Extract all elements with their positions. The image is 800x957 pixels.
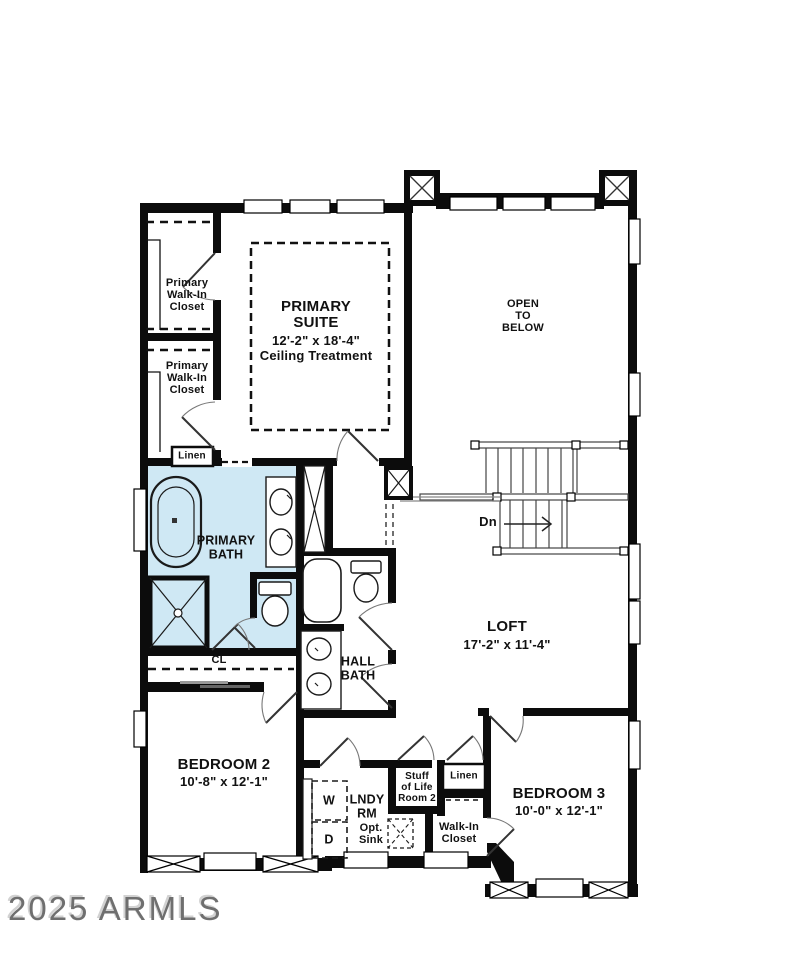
label-stuff-of-life: Stuff of Life Room 2 xyxy=(398,772,436,804)
label-primary-walkin-closet-2: Primary Walk-In Closet xyxy=(166,361,208,397)
stairs xyxy=(400,441,628,555)
label-linen-lower: Linen xyxy=(450,772,478,783)
label-bedroom2-dims: 10'-8" x 12'-1" xyxy=(180,775,268,789)
label-primary-suite-note: Ceiling Treatment xyxy=(260,349,372,363)
label-primary-walkin-closet-1: Primary Walk-In Closet xyxy=(166,278,208,314)
armls-watermark: 2025 ARMLS xyxy=(8,890,222,928)
double-vanity xyxy=(301,631,341,709)
linen-tall-closet xyxy=(304,466,325,552)
label-laundry: LNDY RM xyxy=(350,794,385,821)
floorplan-drawing xyxy=(0,0,800,957)
label-bedroom3: BEDROOM 3 xyxy=(513,786,606,802)
optional-sink-box xyxy=(388,819,413,848)
label-dryer: D xyxy=(324,833,333,847)
label-primary-suite-dims: 12'-2" x 18'-4" xyxy=(272,334,360,348)
hall-small-closet xyxy=(386,468,411,498)
label-walkin-closet: Walk-In Closet xyxy=(439,822,479,846)
label-loft-dims: 17'-2" x 11'-4" xyxy=(463,638,550,652)
label-cl: CL xyxy=(211,655,226,667)
double-vanity xyxy=(266,477,296,567)
hall-bath-fixtures xyxy=(301,559,381,709)
label-laundry-opt-sink: Opt. Sink xyxy=(359,823,383,847)
label-bedroom2: BEDROOM 2 xyxy=(178,757,271,773)
toilet xyxy=(351,561,381,602)
label-linen-upper: Linen xyxy=(178,452,206,463)
toilet xyxy=(259,582,291,626)
label-open-to-below: OPEN TO BELOW xyxy=(502,299,544,335)
floorplan: Primary Walk-In Closet Primary Walk-In C… xyxy=(0,0,800,957)
label-washer: W xyxy=(323,794,335,808)
label-primary-suite: PRIMARY SUITE xyxy=(281,299,351,331)
label-hall-bath: HALL BATH xyxy=(341,656,376,683)
label-stairs-down: Dn xyxy=(479,515,497,529)
label-bedroom3-dims: 10'-0" x 12'-1" xyxy=(515,804,603,818)
label-loft: LOFT xyxy=(487,619,527,635)
label-primary-bath: PRIMARY BATH xyxy=(197,535,256,562)
tub xyxy=(303,559,341,622)
